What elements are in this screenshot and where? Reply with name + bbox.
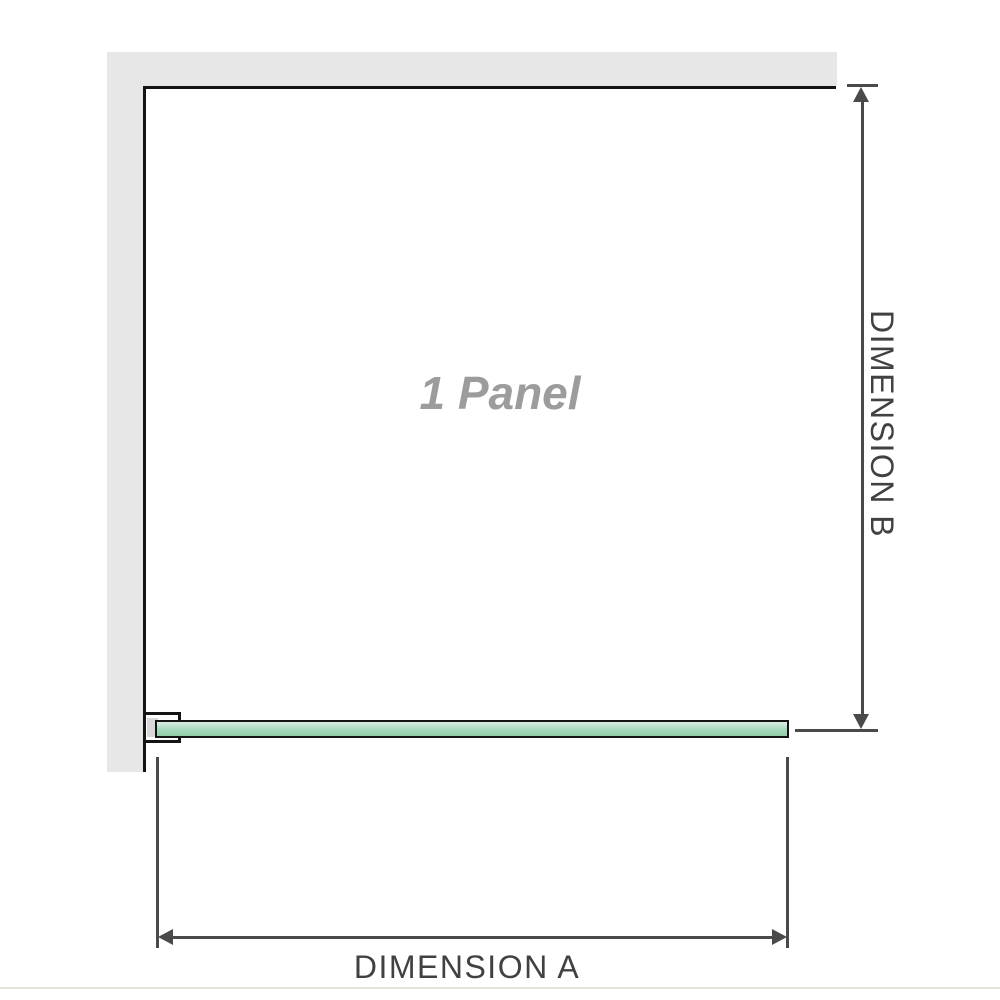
enclosure-left-edge (143, 86, 146, 772)
wall-top-section (107, 52, 837, 86)
wall-left-section (107, 52, 143, 772)
bottom-divider (0, 987, 1000, 989)
dimension-a-left-extension (156, 757, 159, 948)
dimension-a-line (170, 936, 775, 939)
dimension-a-right-extension (786, 757, 789, 948)
panel-dimension-diagram: DIMENSION B DIMENSION A 1 Panel (0, 0, 1000, 1000)
dimension-a-label: DIMENSION A (354, 951, 580, 983)
arrow-down-icon (853, 714, 869, 729)
dimension-b-bottom-tick (795, 729, 878, 732)
arrow-left-icon (158, 929, 173, 945)
arrow-right-icon (772, 929, 787, 945)
panel-count-watermark: 1 Panel (419, 370, 580, 416)
glass-panel (155, 720, 789, 738)
dimension-b-label: DIMENSION B (866, 310, 898, 538)
enclosure-top-edge (143, 86, 836, 89)
arrow-up-icon (853, 87, 869, 102)
